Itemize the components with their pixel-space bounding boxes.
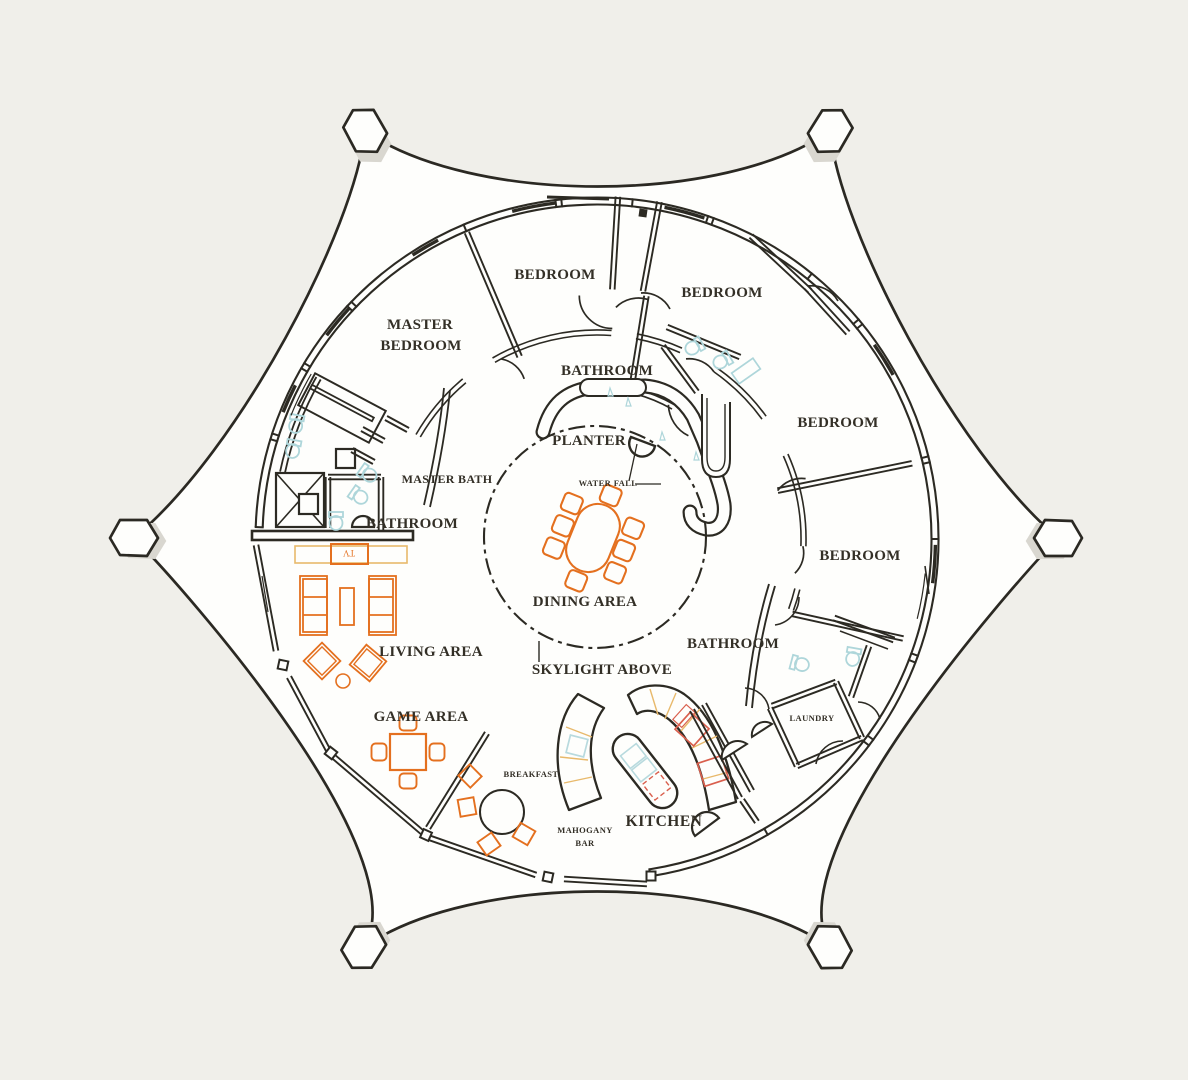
svg-text:DINING AREA: DINING AREA [533, 594, 638, 610]
svg-text:KITCHEN: KITCHEN [626, 813, 703, 830]
svg-text:BATHROOM: BATHROOM [366, 516, 458, 532]
svg-text:BREAKFAST: BREAKFAST [504, 769, 559, 779]
svg-text:BEDROOM: BEDROOM [681, 285, 762, 301]
svg-text:LAUNDRY: LAUNDRY [789, 713, 834, 723]
svg-text:BATHROOM: BATHROOM [687, 636, 779, 652]
svg-text:MASTER: MASTER [387, 317, 453, 333]
svg-text:BEDROOM: BEDROOM [797, 415, 878, 431]
svg-text:MAHOGANY: MAHOGANY [557, 825, 613, 835]
svg-text:PLANTER: PLANTER [552, 433, 626, 449]
svg-text:GAME AREA: GAME AREA [374, 709, 469, 725]
svg-text:WATER FALL: WATER FALL [579, 478, 638, 488]
svg-text:MASTER BATH: MASTER BATH [402, 472, 493, 486]
svg-text:BEDROOM: BEDROOM [819, 548, 900, 564]
svg-text:TV: TV [343, 548, 355, 558]
svg-text:SKYLIGHT ABOVE: SKYLIGHT ABOVE [532, 662, 672, 678]
svg-text:BEDROOM: BEDROOM [380, 338, 461, 354]
svg-text:BAR: BAR [575, 838, 595, 848]
svg-text:LIVING AREA: LIVING AREA [379, 644, 483, 660]
svg-text:BATHROOM: BATHROOM [561, 363, 653, 379]
svg-text:BEDROOM: BEDROOM [514, 267, 595, 283]
